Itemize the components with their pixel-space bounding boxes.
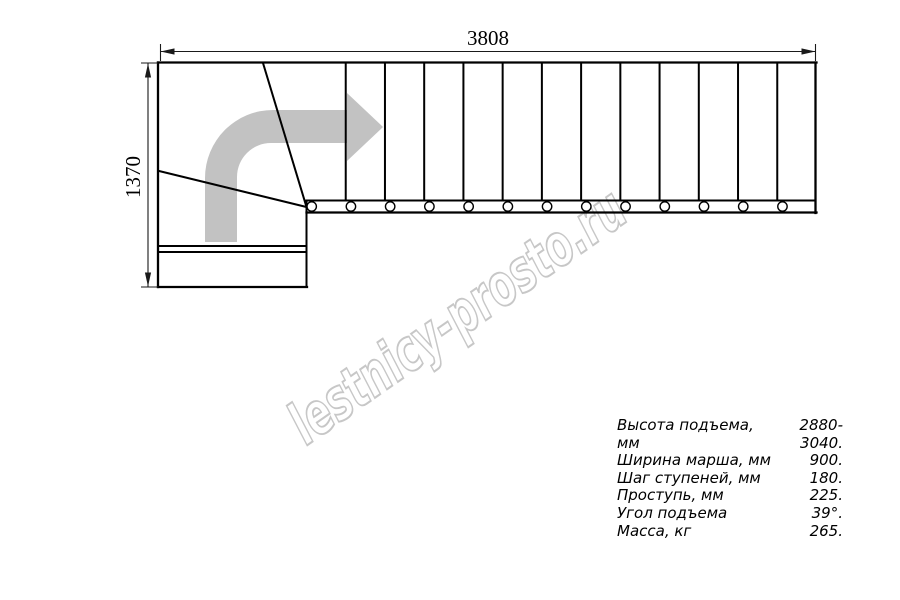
baluster-circle xyxy=(621,202,630,211)
left-dimension-label: 1370 xyxy=(121,156,145,198)
spec-label: Масса, кг xyxy=(617,523,691,541)
baluster-circle xyxy=(307,202,316,211)
baluster-circle xyxy=(542,202,551,211)
spec-row: Проступь, мм225. xyxy=(617,487,843,505)
dim-arrow-right-icon xyxy=(802,48,816,54)
baluster-circle xyxy=(385,202,394,211)
dim-arrow-up-icon xyxy=(145,64,151,78)
spec-label: Угол подъема xyxy=(617,505,727,523)
spec-value: 900. xyxy=(810,452,843,470)
spec-row: Шаг ступеней, мм180. xyxy=(617,470,843,488)
step-lines xyxy=(346,64,778,201)
spec-value: 225. xyxy=(810,487,843,505)
baluster-circles xyxy=(307,202,787,211)
left-dimension: 1370 xyxy=(121,63,158,287)
spec-row: Высота подъема, мм2880-3040. xyxy=(617,417,843,452)
spec-label: Высота подъема, мм xyxy=(617,417,765,452)
spec-value: 180. xyxy=(810,470,843,488)
spec-table: Высота подъема, мм2880-3040.Ширина марша… xyxy=(617,417,843,540)
spec-row: Масса, кг265. xyxy=(617,523,843,541)
dim-arrow-down-icon xyxy=(145,273,151,287)
top-dimension: 3808 xyxy=(161,26,816,61)
baluster-circle xyxy=(425,202,434,211)
spec-value: 2880-3040. xyxy=(765,417,843,452)
spec-label: Шаг ступеней, мм xyxy=(617,470,761,488)
spec-label: Ширина марша, мм xyxy=(617,452,771,470)
baluster-circle xyxy=(699,202,708,211)
stair-outline xyxy=(158,63,817,288)
baluster-circle xyxy=(503,202,512,211)
spec-value: 265. xyxy=(810,523,843,541)
stair-drawing-canvas: lestnicy-prosto.ru xyxy=(0,0,900,600)
spec-label: Проступь, мм xyxy=(617,487,724,505)
spec-row: Ширина марша, мм900. xyxy=(617,452,843,470)
spec-value: 39°. xyxy=(812,505,843,523)
baluster-circle xyxy=(660,202,669,211)
baluster-circle xyxy=(739,202,748,211)
baluster-circle xyxy=(778,202,787,211)
top-dimension-label: 3808 xyxy=(467,26,509,50)
spec-row: Угол подъема39°. xyxy=(617,505,843,523)
baluster-circle xyxy=(464,202,473,211)
dim-arrow-left-icon xyxy=(161,48,175,54)
baluster-circle xyxy=(346,202,355,211)
baluster-circle xyxy=(582,202,591,211)
